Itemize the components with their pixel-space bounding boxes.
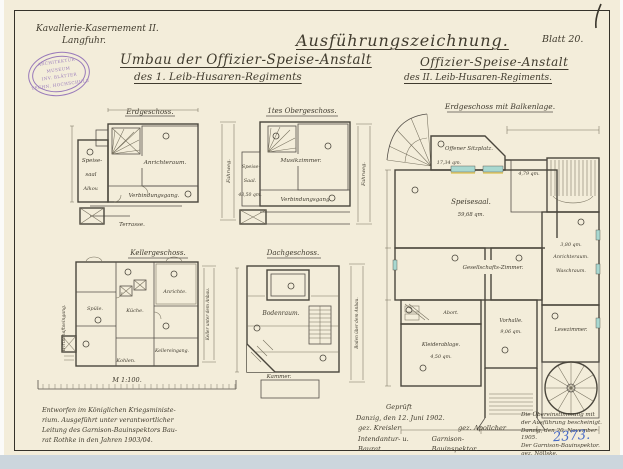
plan1-title: Erdgeschoss. — [125, 108, 173, 116]
right-title: Offizier-Speise-Anstalt — [420, 55, 568, 69]
left-subtitle: des 1. Leib-Husaren-Regiments — [134, 71, 302, 83]
plan2-room-area: 43,50 qm. — [237, 192, 262, 198]
plan5-vorraum-area: 4,79 qm. — [517, 171, 540, 177]
plan5-kleider-area: 4,50 qm. — [429, 354, 452, 360]
main-title: Ausführungszeichnung. — [296, 31, 509, 50]
plan3-room-kohlen: Kohlen. — [115, 358, 136, 364]
plan5-room-sitzplatz: Offener Sitzplatz. — [445, 146, 493, 152]
plan2-room-musik: Musikzimmer. — [279, 158, 321, 164]
plan5-room-kleider: Kleiderablage. — [421, 342, 461, 348]
plan-erdgeschoss-balkenlage: Erdgeschoss mit Balkenlage. Offener Sitz… — [385, 100, 607, 438]
plan1-room-saal: saal — [85, 172, 96, 178]
plan5-speisesaal-area: 59,68 qm. — [458, 212, 485, 218]
plan1-side-label: Fahrweg. — [226, 159, 232, 184]
plan5-room-vorhalle: Vorhalle. — [499, 318, 523, 324]
design-note-line4: rat Rothke in den Jahren 1903/04. — [42, 436, 217, 446]
plan5-vorhalle-area: 9,06 qm. — [500, 329, 522, 335]
plan3-title: Kellergeschoss. — [129, 249, 185, 257]
right-subtitle: des II. Leib-Husaren-Regiments. — [404, 73, 552, 83]
approval-geprueft: Geprüft — [386, 402, 508, 413]
plan5-sitzplatz-area: 17,34 qm. — [437, 160, 462, 166]
plan3-room-anrichte: Anrichte. — [162, 289, 187, 295]
plan2-room-speise: Speise- — [242, 164, 261, 170]
approval-date: Danzig, den 12. Juni 1902. — [356, 413, 508, 424]
plan3-room-kueche: Küche. — [125, 308, 144, 314]
corner-pen-mark — [590, 2, 606, 30]
signature-1-title: Intendantur- u. Baurat. — [358, 434, 432, 455]
plan2-room-gang: Verbindungsgang. — [281, 197, 332, 203]
plan2-title: 1tes Obergeschoss. — [267, 107, 336, 115]
plan1-room-gang: Verbindungsgang. — [129, 193, 180, 199]
plan3-room-spuele: Spüle. — [87, 306, 103, 312]
drawing-sheet: Kavallerie-Kasernement II. Langfuhr. Aus… — [0, 0, 623, 469]
plan5-room-lese: Lesezimmer. — [553, 327, 587, 333]
plan-kellergeschoss: Kellergeschoss. Wirtschaftseingang. Anri… — [58, 248, 242, 378]
cert-line4: Der Garnison-Bauinspektor. — [521, 443, 609, 451]
plan4-room-boden: Bodenraum. — [261, 310, 299, 317]
plan5-room-abort: Abort. — [442, 310, 459, 316]
plan5-room-anrichte: Anrichteraum. — [552, 254, 589, 260]
design-note-line1: Entworfen im Königlichen Kriegsministe- — [42, 406, 217, 416]
scan-edge-strip — [0, 455, 623, 469]
design-note-line3: Leitung des Garnison-Bauinspektors Bau- — [42, 426, 217, 436]
design-note: Entworfen im Königlichen Kriegsministe- … — [42, 406, 217, 446]
plan5-room-wasch: Waschraum. — [556, 268, 586, 274]
plan4-room-kammer: Kammer. — [266, 374, 292, 380]
sheet-number-label: Blatt 20. — [542, 34, 583, 45]
plan-erdgeschoss: Erdgeschoss. Fahrweg. Anrichteraum. Spei… — [70, 106, 247, 242]
left-title: Umbau der Offizier-Speise-Anstalt — [120, 52, 372, 68]
site-line1: Kavallerie-Kasernement II. — [36, 23, 159, 35]
site-line2: Langfuhr. — [62, 35, 159, 47]
plan3-room-kellereingang: Kellereingang. — [154, 348, 190, 354]
plan1-room-anrichteraum: Anrichteraum. — [143, 160, 187, 166]
plan1-room-terrasse: Terrasse. — [119, 222, 145, 228]
plan4-title: Dachgeschoss. — [266, 249, 319, 257]
plan5-room-gesellschaft: Gesellschafts-Zimmer. — [463, 265, 524, 271]
scale-bar: M 1:100. — [34, 374, 240, 396]
plan-obergeschoss: 1tes Obergeschoss. Fahrweg. Musikzimmer.… — [238, 106, 376, 242]
plan-dachgeschoss: Dachgeschoss. Bodenraum. Boden über dem … — [233, 248, 381, 400]
scale-label: M 1:100. — [111, 376, 142, 384]
plan2-side-label: Fahrweg. — [361, 162, 367, 187]
plan1-room-speise: Speise- — [82, 158, 102, 164]
site-label: Kavallerie-Kasernement II. Langfuhr. — [36, 23, 159, 47]
plan4-side-label: Boden über dem Anbau. — [354, 297, 359, 349]
signature-2-title: Garnison-Bauinspektor. — [432, 434, 506, 455]
plan1-room-alkov: Alkov. — [82, 186, 98, 192]
plan3-side-right-label: Keller unter dem Anbau. — [205, 288, 210, 341]
registry-number: 2373. — [553, 428, 591, 446]
approval-block: Geprüft Danzig, den 12. Juni 1902. gez. … — [356, 402, 508, 455]
plan2-room-saal: Saal. — [244, 178, 257, 184]
cert-line1: Die Übereinstimmung mit — [521, 412, 609, 420]
plan5-anrichte-area: 3,80 qm. — [560, 242, 582, 248]
plan5-room-speisesaal: Speisesaal. — [451, 198, 491, 206]
design-note-line2: rium. Ausgeführt unter verantwortlicher — [42, 416, 217, 426]
cert-line2: der Ausführung bescheinigt. — [521, 420, 609, 428]
plan5-title: Erdgeschoss mit Balkenlage. — [444, 102, 555, 111]
signature-1: gez. Kreisler — [358, 423, 400, 434]
signature-2: gez. Apollcher — [458, 423, 506, 434]
